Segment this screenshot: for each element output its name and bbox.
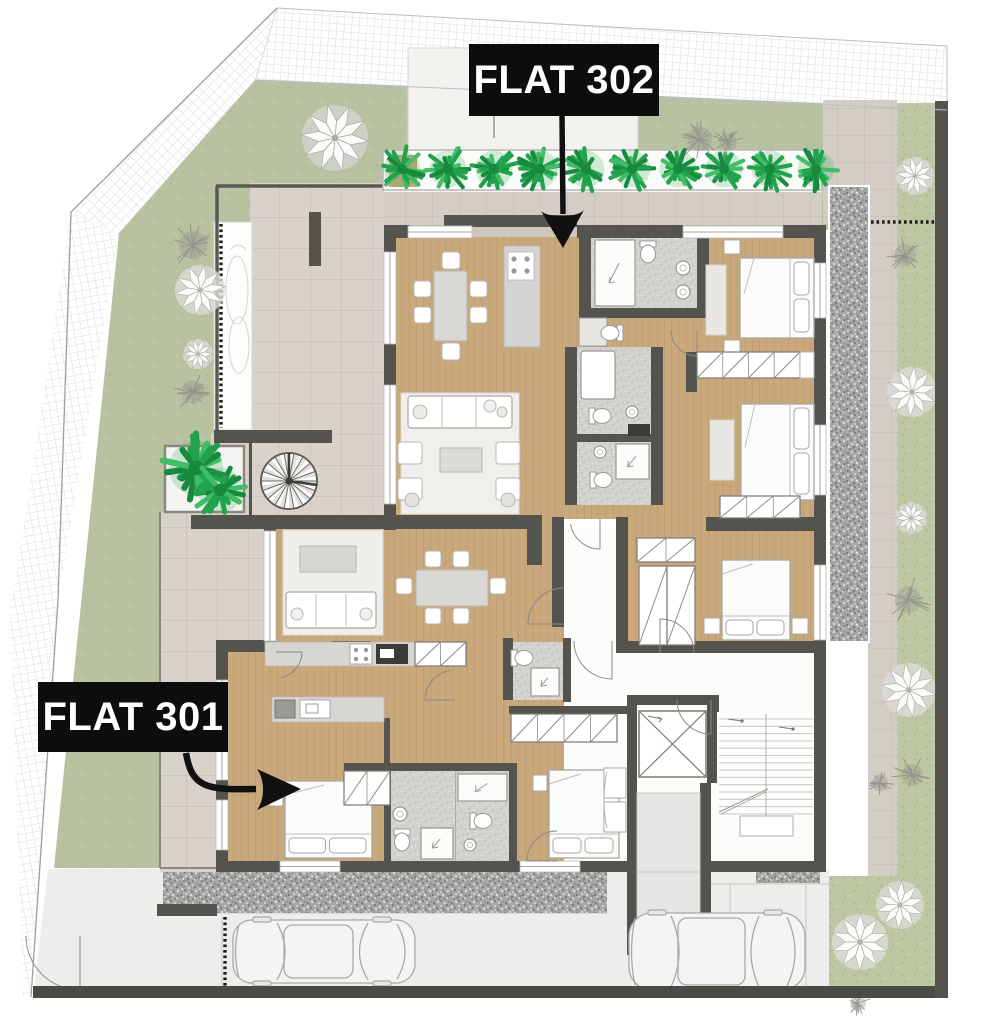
svg-text:FLAT 302: FLAT 302 xyxy=(473,58,654,102)
svg-text:FLAT 301: FLAT 301 xyxy=(42,695,223,739)
